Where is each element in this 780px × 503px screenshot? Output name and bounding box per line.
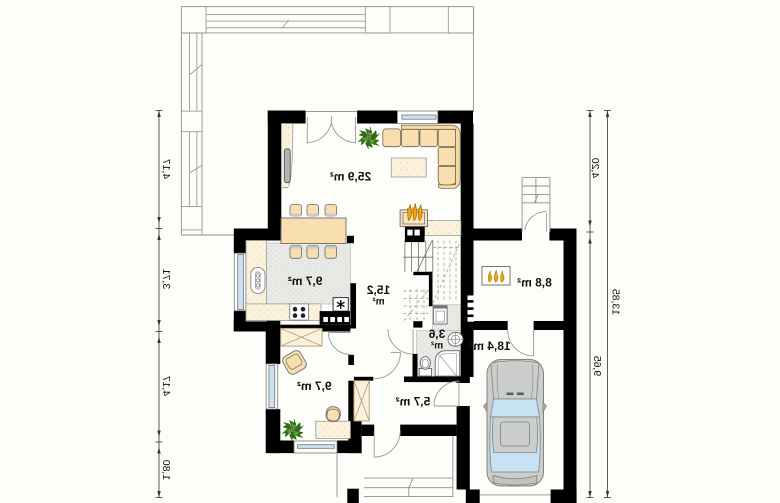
svg-text:18,4 m²: 18,4 m²	[469, 339, 510, 353]
svg-text:4,17: 4,17	[160, 159, 172, 180]
svg-text:13,85: 13,85	[609, 289, 621, 315]
svg-text:9,7 m²: 9,7 m²	[288, 274, 323, 288]
svg-text:3,71: 3,71	[160, 269, 172, 290]
svg-text:15,2: 15,2	[366, 283, 390, 297]
svg-text:5,7 m²: 5,7 m²	[396, 395, 431, 409]
svg-text:9,7 m²: 9,7 m²	[297, 379, 332, 393]
svg-text:4,17: 4,17	[160, 376, 172, 397]
svg-text:8,8 m²: 8,8 m²	[517, 276, 552, 290]
svg-text:m²: m²	[372, 297, 385, 308]
svg-text:3,6: 3,6	[428, 327, 445, 341]
svg-text:9,65: 9,65	[591, 356, 603, 377]
svg-text:25,9 m²: 25,9 m²	[330, 170, 371, 184]
svg-text:1,80: 1,80	[160, 460, 172, 481]
svg-text:m²: m²	[430, 341, 443, 352]
svg-text:4,20: 4,20	[589, 158, 601, 179]
